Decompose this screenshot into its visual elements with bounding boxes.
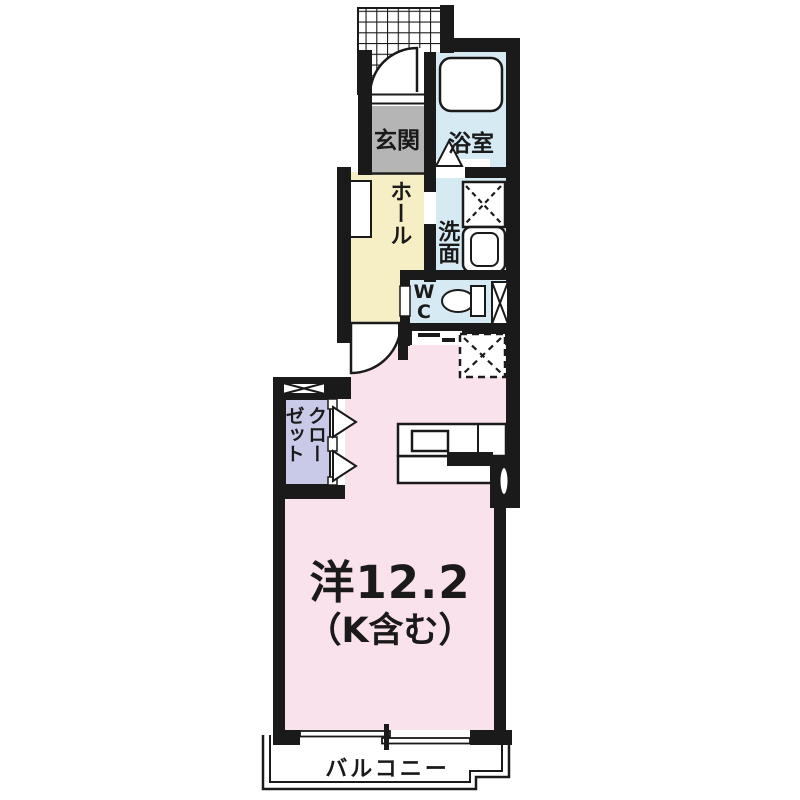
wc-door-icon (400, 286, 410, 316)
room-label-living-sub: （K含む） (280, 602, 500, 653)
room-label-bathroom: 浴室 (436, 124, 506, 158)
refrigerator-space-icon (460, 334, 505, 377)
washbasin-icon (463, 227, 505, 272)
floorplan-drawing (0, 0, 800, 800)
kitchen-sink-icon (412, 431, 448, 451)
bathtub-icon (440, 58, 502, 111)
room-label-closet: クロー ゼット (285, 406, 327, 486)
kitchen-counter-icon (398, 424, 506, 483)
room-label-genkan: 玄関 (370, 121, 424, 155)
cross-window-icon (283, 383, 325, 394)
room-label-balcony: バルコニー (280, 751, 495, 783)
wc-side-window-icon (492, 282, 508, 324)
shoe-cabinet-icon (349, 181, 371, 237)
floorplan-page: 玄関 浴室 ホール 洗面 W C クロー ゼット 洋12.2 （K含む） バルコ… (0, 0, 800, 800)
room-label-washroom: 洗面 (434, 220, 458, 278)
counter-hatch-opening (412, 331, 462, 345)
room-label-wc: W C (411, 283, 437, 323)
casement-window-icon (500, 467, 509, 495)
room-label-hall: ホール (386, 180, 410, 262)
